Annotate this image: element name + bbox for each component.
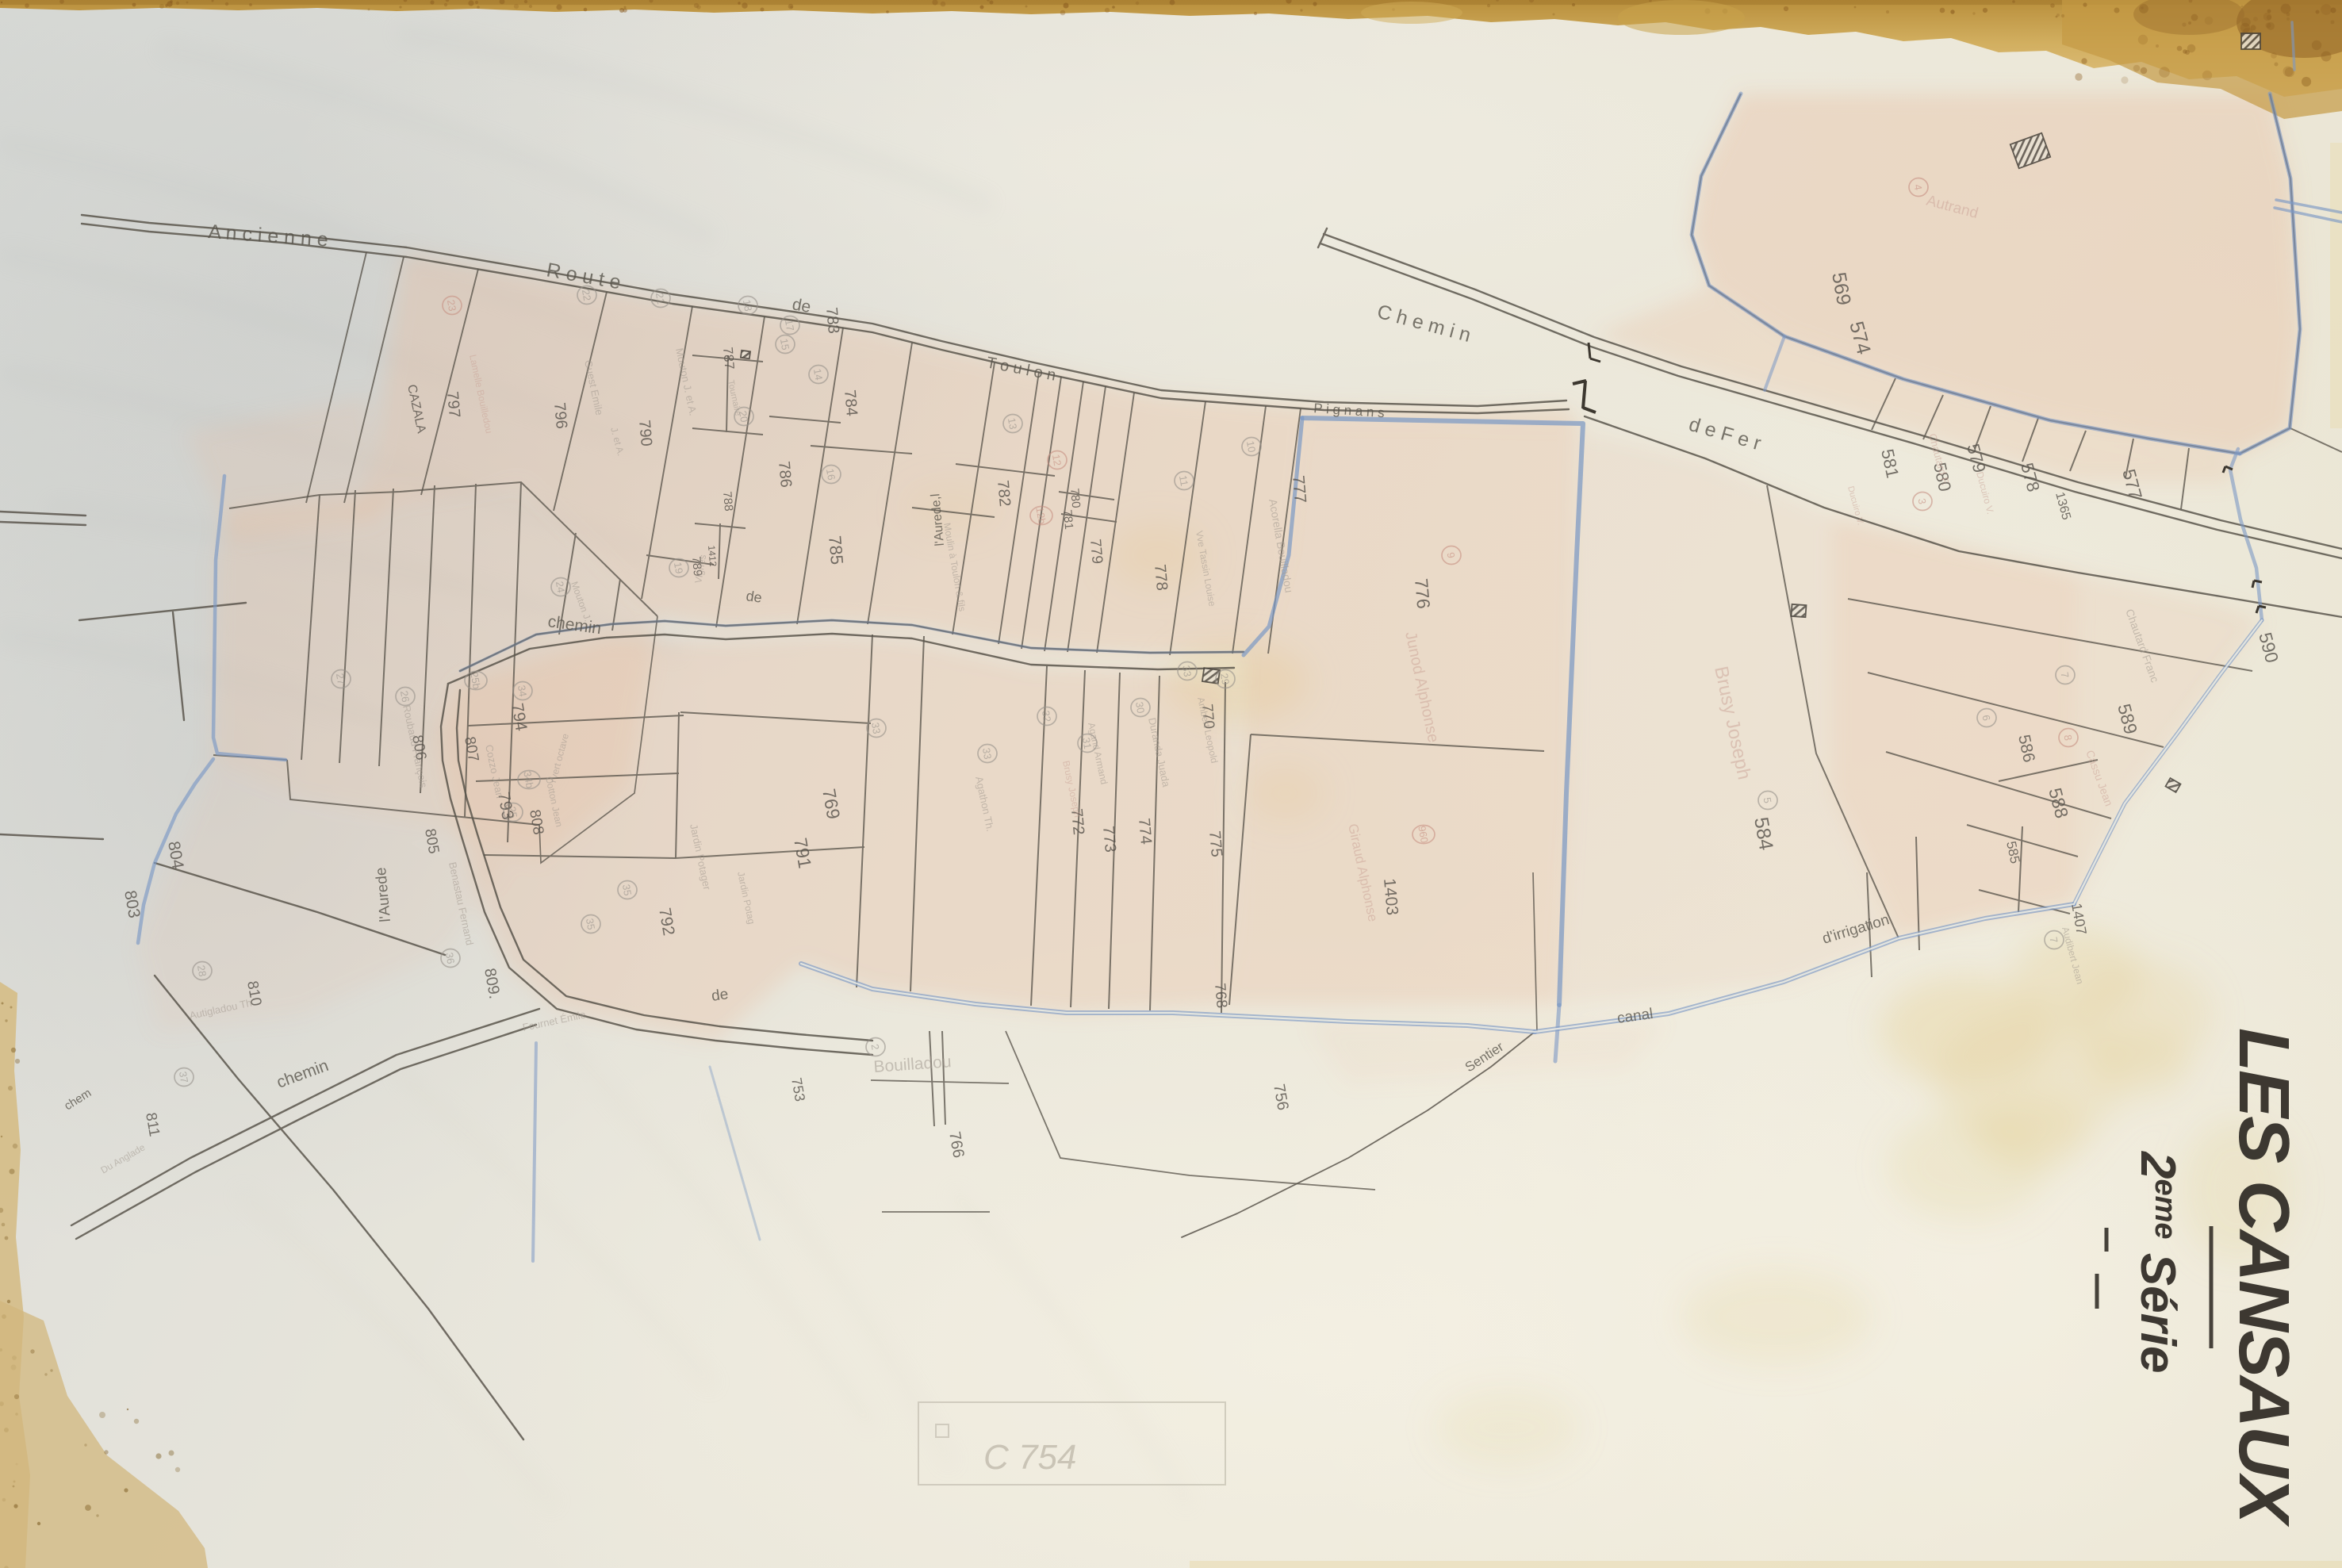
svg-text:30: 30 [1133, 701, 1147, 715]
svg-text:785: 785 [825, 535, 847, 565]
svg-text:12: 12 [1050, 454, 1064, 467]
svg-text:35: 35 [584, 918, 597, 931]
svg-text:C 754: C 754 [983, 1438, 1076, 1477]
svg-text:31: 31 [1080, 737, 1094, 750]
svg-text:13: 13 [1006, 417, 1019, 431]
svg-text:29: 29 [1218, 673, 1232, 686]
svg-text:796: 796 [550, 402, 570, 430]
svg-text:LES CANSAUX: LES CANSAUX [2224, 1028, 2303, 1528]
svg-text:de: de [791, 295, 812, 316]
svg-text:36: 36 [443, 952, 457, 965]
svg-text:33: 33 [869, 722, 883, 735]
svg-text:37: 37 [177, 1071, 190, 1084]
svg-text:de: de [711, 986, 730, 1005]
svg-text:778: 778 [1151, 564, 1171, 592]
svg-text:34: 34 [516, 684, 529, 698]
svg-text:21: 21 [654, 292, 667, 305]
svg-text:775: 775 [1205, 830, 1225, 858]
svg-text:1403: 1403 [1380, 877, 1401, 916]
svg-text:33: 33 [980, 747, 994, 761]
svg-text:15: 15 [778, 338, 792, 351]
svg-text:797: 797 [443, 391, 463, 419]
svg-text:23: 23 [445, 299, 458, 312]
svg-text:787: 787 [720, 347, 737, 370]
svg-text:786: 786 [775, 461, 795, 489]
svg-text:26: 26 [398, 690, 412, 703]
svg-text:18: 18 [741, 299, 754, 312]
svg-text:20: 20 [737, 410, 750, 424]
svg-text:25: 25 [506, 806, 519, 819]
svg-text:779: 779 [1087, 539, 1106, 565]
svg-text:768: 768 [1211, 983, 1230, 1009]
svg-text:781: 781 [1060, 509, 1075, 530]
svg-text:27: 27 [334, 673, 347, 686]
svg-text:773: 773 [1099, 826, 1119, 853]
svg-text:776: 776 [1411, 577, 1434, 609]
svg-text:de: de [745, 588, 763, 606]
svg-text:32: 32 [1040, 710, 1053, 723]
svg-text:33: 33 [1180, 665, 1194, 678]
svg-text:17: 17 [783, 319, 796, 332]
svg-text:10: 10 [1244, 440, 1258, 454]
svg-text:788: 788 [720, 491, 735, 512]
svg-text:784: 784 [841, 389, 861, 417]
svg-text:28: 28 [195, 964, 209, 978]
svg-text:16: 16 [824, 468, 838, 481]
svg-text:783: 783 [822, 307, 842, 335]
svg-text:777: 777 [1289, 474, 1309, 504]
svg-text:774: 774 [1135, 818, 1155, 845]
svg-text:790: 790 [635, 420, 655, 447]
svg-text:782: 782 [994, 480, 1014, 508]
svg-text:14: 14 [811, 368, 825, 381]
svg-text:19: 19 [672, 562, 685, 575]
svg-text:24: 24 [554, 581, 567, 594]
svg-text:11: 11 [1177, 474, 1190, 487]
svg-text:780: 780 [1068, 488, 1083, 508]
svg-text:22: 22 [580, 289, 593, 302]
svg-text:35: 35 [620, 884, 634, 897]
